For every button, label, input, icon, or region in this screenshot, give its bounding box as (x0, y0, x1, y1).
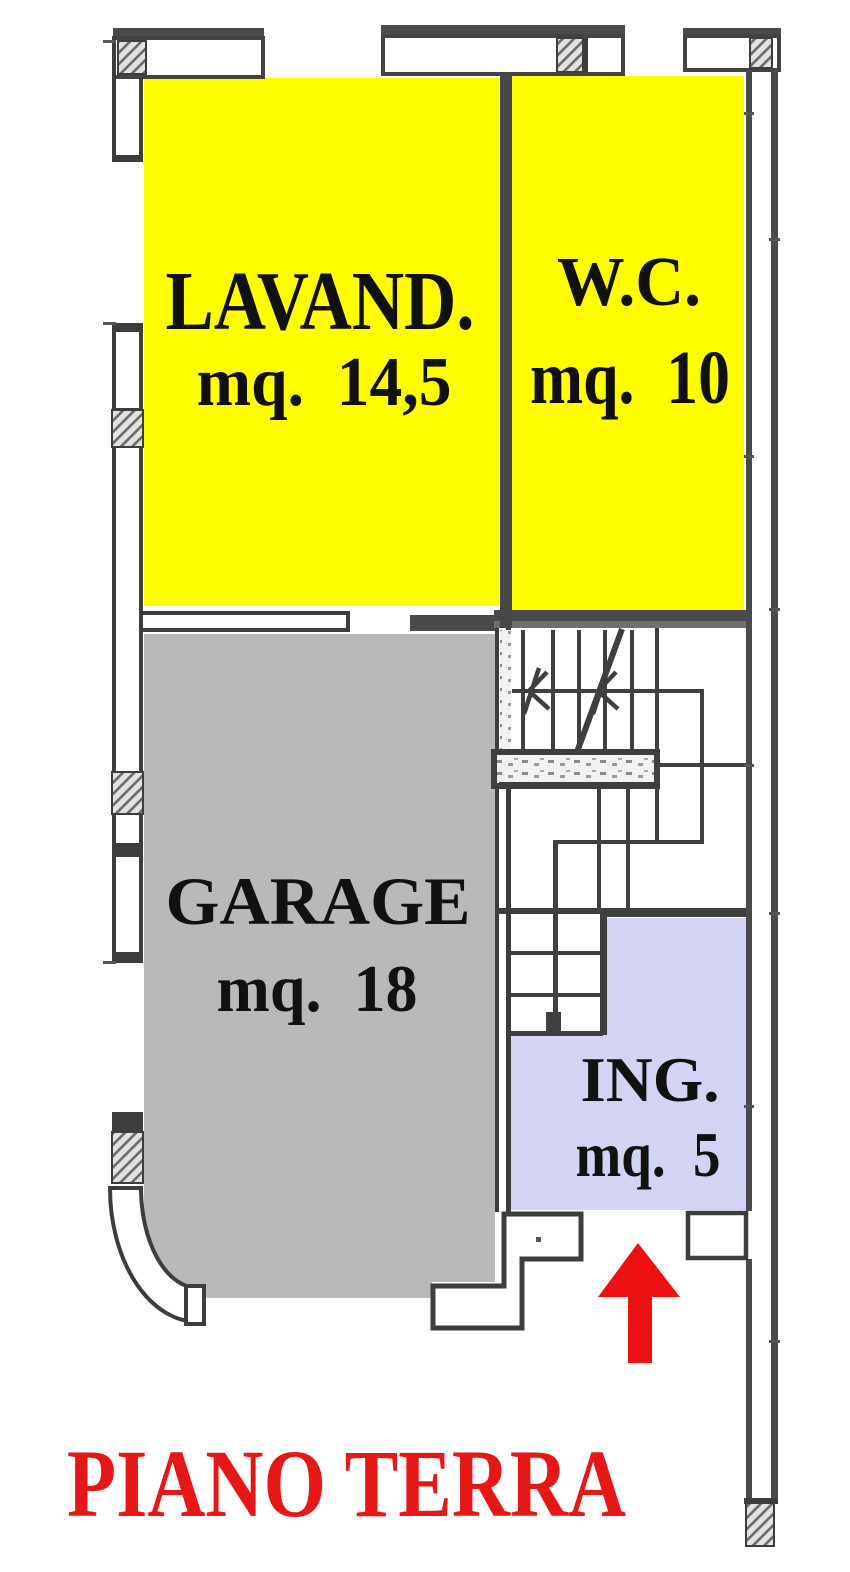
svg-text:mq. 5: mq. 5 (576, 1120, 721, 1190)
svg-text:PIANO TERRA: PIANO TERRA (67, 1430, 626, 1537)
svg-text:mq. 10: mq. 10 (530, 336, 730, 420)
svg-text:W.C.: W.C. (557, 244, 701, 321)
svg-text:ING.: ING. (581, 1045, 720, 1115)
svg-text:mq. 18: mq. 18 (217, 952, 418, 1026)
svg-text:mq. 14,5: mq. 14,5 (197, 344, 452, 421)
svg-text:GARAGE: GARAGE (166, 863, 471, 939)
svg-text:LAVAND.: LAVAND. (166, 255, 475, 348)
